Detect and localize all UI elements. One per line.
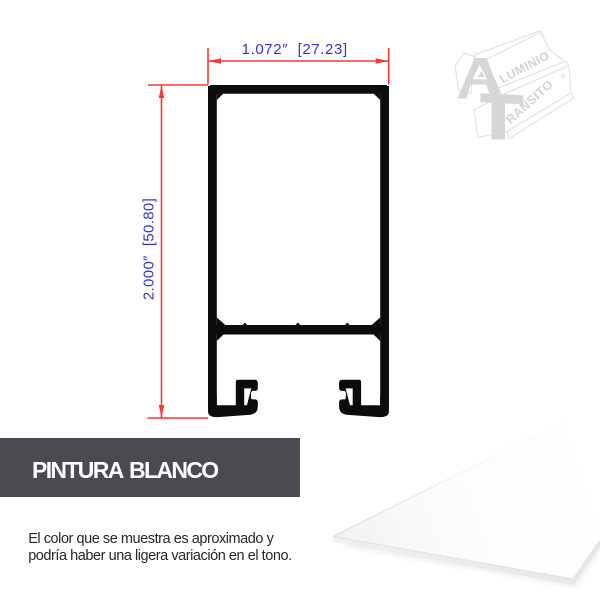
svg-text:®: ® xyxy=(561,73,566,81)
svg-text:1.072″ [27.23]: 1.072″ [27.23] xyxy=(242,41,348,58)
svg-text:2.000″ [50.80]: 2.000″ [50.80] xyxy=(140,198,157,300)
